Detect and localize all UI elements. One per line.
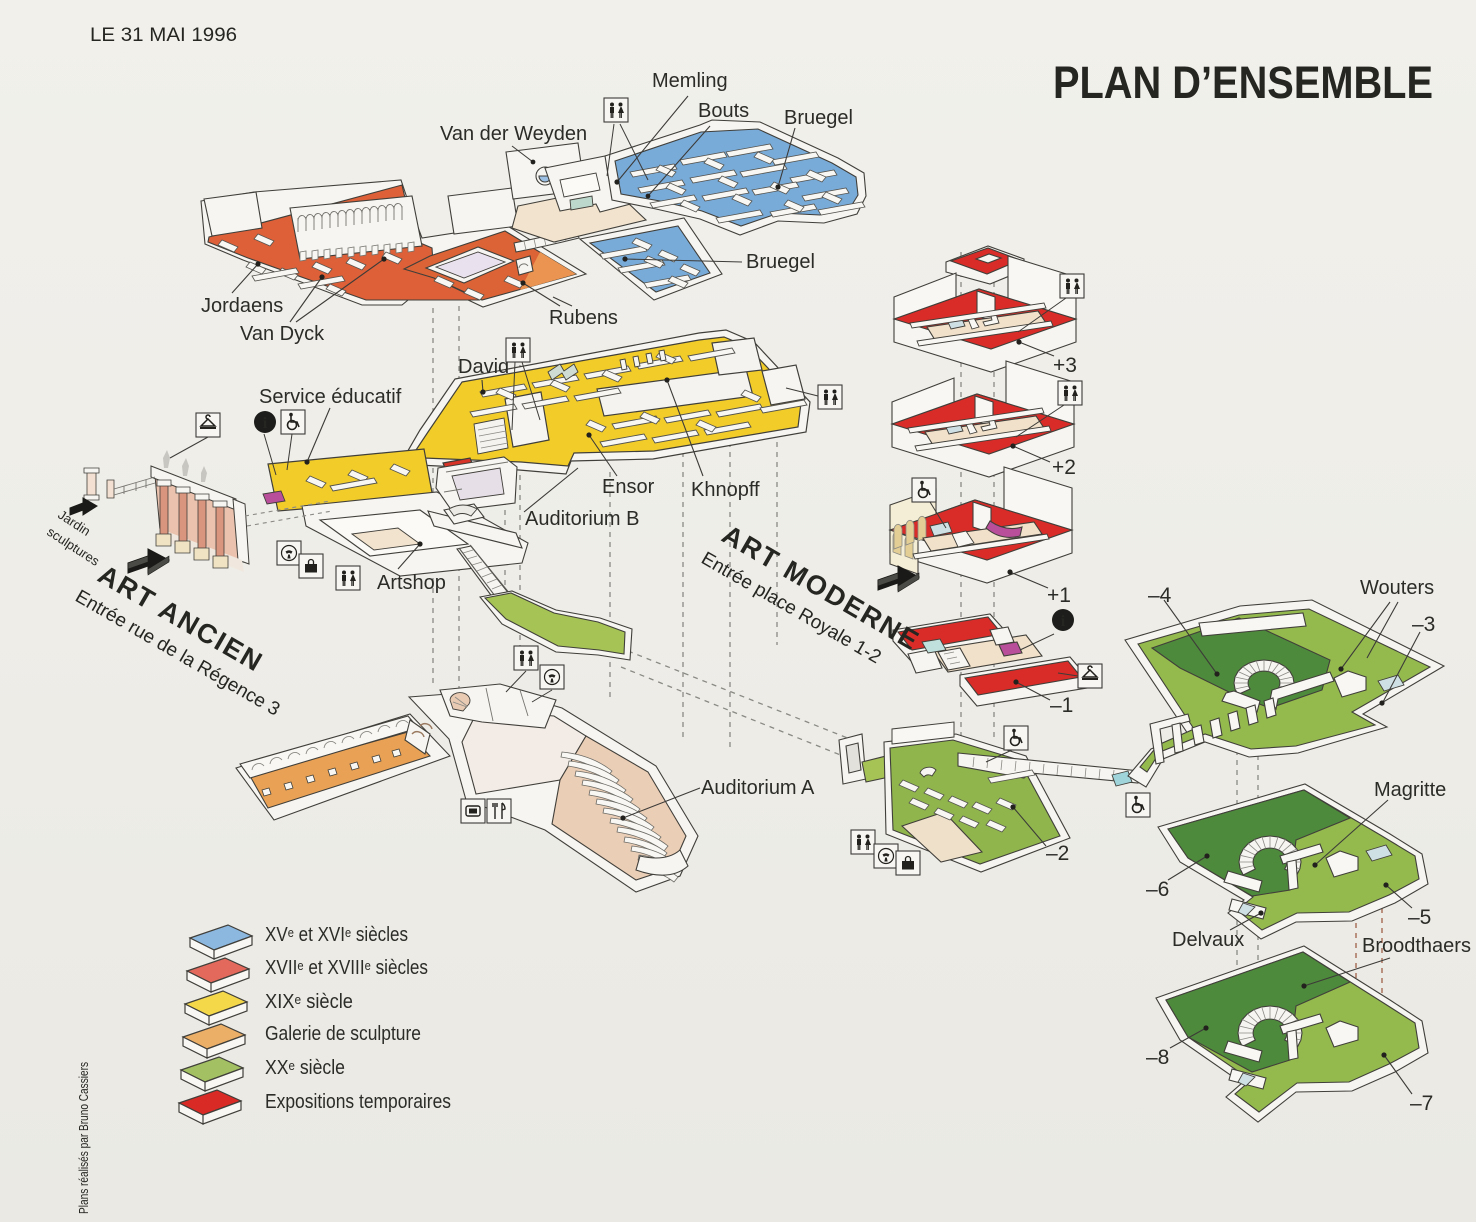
svg-text:Ensor: Ensor (602, 476, 655, 498)
svg-text:Artshop: Artshop (377, 572, 446, 594)
svg-text:Rubens: Rubens (549, 307, 618, 329)
svg-text:XVIIe et XVIIIe siècles: XVIIe et XVIIIe siècles (265, 957, 428, 979)
svg-text:–1: –1 (1050, 694, 1073, 717)
svg-text:Bouts: Bouts (698, 100, 749, 122)
svg-text:–5: –5 (1408, 906, 1431, 929)
svg-text:Galerie de sculpture: Galerie de sculpture (265, 1023, 421, 1045)
svg-text:Expositions temporaires: Expositions temporaires (265, 1091, 451, 1113)
svg-text:Jordaens: Jordaens (201, 295, 283, 317)
svg-text:LE 31 MAI 1996: LE 31 MAI 1996 (90, 25, 237, 46)
svg-text:–4: –4 (1148, 584, 1172, 607)
svg-text:+1: +1 (1047, 584, 1071, 607)
svg-text:+3: +3 (1053, 354, 1077, 377)
svg-text:XVe et XVIe siècles: XVe et XVIe siècles (265, 924, 408, 946)
svg-text:Bruegel: Bruegel (784, 107, 853, 129)
svg-text:Memling: Memling (652, 70, 728, 92)
svg-text:XXe siècle: XXe siècle (265, 1057, 345, 1079)
svg-text:–3: –3 (1412, 613, 1435, 636)
svg-text:Wouters: Wouters (1360, 577, 1434, 599)
svg-text:Service éducatif: Service éducatif (259, 386, 402, 408)
svg-text:David: David (458, 356, 509, 378)
svg-text:Auditorium A: Auditorium A (701, 777, 815, 799)
svg-text:Khnopff: Khnopff (691, 479, 760, 501)
svg-text:Auditorium B: Auditorium B (525, 508, 640, 530)
svg-text:Delvaux: Delvaux (1172, 929, 1244, 951)
svg-text:PLAN D’ENSEMBLE: PLAN D’ENSEMBLE (1053, 57, 1433, 108)
svg-text:Broodthaers: Broodthaers (1362, 935, 1471, 957)
svg-text:Van der Weyden: Van der Weyden (440, 123, 587, 145)
svg-text:–2: –2 (1046, 842, 1069, 865)
svg-text:–7: –7 (1410, 1092, 1433, 1115)
svg-text:+2: +2 (1052, 456, 1076, 479)
svg-text:XIXe siècle: XIXe siècle (265, 991, 353, 1013)
svg-text:Van Dyck: Van Dyck (240, 323, 325, 345)
svg-text:Bruegel: Bruegel (746, 251, 815, 273)
svg-text:–8: –8 (1146, 1046, 1169, 1069)
svg-text:Plans réalisés par Bruno Cassi: Plans réalisés par Bruno Cassiers (77, 1062, 91, 1214)
svg-text:Magritte: Magritte (1374, 779, 1446, 801)
svg-text:–6: –6 (1146, 878, 1169, 901)
